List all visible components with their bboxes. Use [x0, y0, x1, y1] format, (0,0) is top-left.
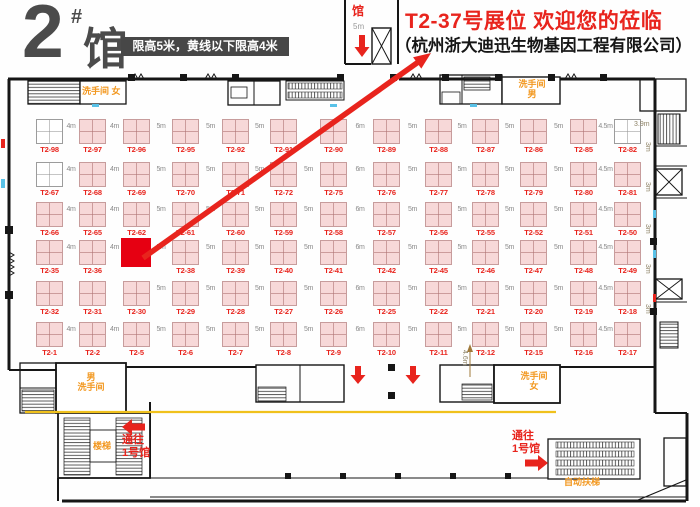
aisle-width-label: 6m — [347, 166, 373, 173]
booth-label: T2-22 — [425, 307, 452, 316]
booth-square — [320, 162, 347, 187]
booth-square — [614, 322, 641, 347]
booth: T2-66 — [36, 202, 63, 237]
aisle-width-label: 5m — [249, 166, 270, 173]
booth-label: T2-12 — [472, 348, 499, 357]
aisle-width-label: 5m — [199, 206, 222, 213]
booth: T2-41 — [320, 240, 347, 275]
booth: T2-21 — [472, 281, 499, 316]
booth: T2-50 — [614, 202, 641, 237]
aisle-width-label: 4.5m — [597, 123, 614, 130]
booth-label: T2-18 — [614, 307, 641, 316]
aisle-width-label: 5m — [249, 326, 270, 333]
aisle-width-label: 5m — [452, 166, 472, 173]
booth-square — [614, 240, 641, 265]
booth-square — [121, 238, 151, 267]
booth-label: T2-1 — [36, 348, 63, 357]
booth-square — [172, 202, 199, 227]
booth-square — [373, 240, 400, 265]
booth: T2-90 — [320, 119, 347, 154]
booth-label: T2-49 — [614, 266, 641, 275]
booth: T2-28 — [222, 281, 249, 316]
booth-square — [320, 119, 347, 144]
booth-square — [373, 162, 400, 187]
booth: T2-80 — [570, 162, 597, 197]
booth-label: T2-59 — [270, 228, 297, 237]
booth: T2-87 — [472, 119, 499, 154]
booth: T2-72 — [270, 162, 297, 197]
booth-square — [123, 119, 150, 144]
booth: T2-32 — [36, 281, 63, 316]
booth-label: T2-61 — [172, 228, 199, 237]
booth: T2-18 — [614, 281, 641, 316]
booth: T2-77 — [425, 162, 452, 197]
booth-label: T2-29 — [172, 307, 199, 316]
booth-square — [373, 281, 400, 306]
booth-label: T2-42 — [373, 266, 400, 275]
booth-square — [425, 240, 452, 265]
booth-square — [425, 322, 452, 347]
aisle-width-label: 5m — [150, 326, 172, 333]
booth-label: T2-21 — [472, 307, 499, 316]
booth-label: T2-85 — [570, 145, 597, 154]
booth-square — [425, 162, 452, 187]
booth-square — [320, 281, 347, 306]
aisle-width-label: 5m — [400, 326, 425, 333]
aisle-width-label: 4.5m — [597, 206, 614, 213]
booth-label: T2-97 — [79, 145, 106, 154]
booth-label: T2-10 — [373, 348, 400, 357]
aisle-width-label: 5m — [547, 244, 570, 251]
booth-label: T2-78 — [472, 188, 499, 197]
booth-label: T2-68 — [79, 188, 106, 197]
aisle-width-label: 5m — [297, 166, 320, 173]
booth: T2-12 — [472, 322, 499, 357]
booth-grid: T2-98T2-97T2-96T2-95T2-92T2-91T2-90T2-89… — [0, 0, 700, 507]
booth: T2-25 — [373, 281, 400, 316]
booth-square — [79, 202, 106, 227]
booth-label: T2-30 — [123, 307, 150, 316]
booth-label: T2-66 — [36, 228, 63, 237]
booth: T2-81 — [614, 162, 641, 197]
booth-label: T2-90 — [320, 145, 347, 154]
booth-label: T2-15 — [520, 348, 547, 357]
booth: T2-71 — [222, 162, 249, 197]
booth-label: T2-67 — [36, 188, 63, 197]
booth: T2-96 — [123, 119, 150, 154]
booth-label: T2-92 — [222, 145, 249, 154]
booth-square — [222, 322, 249, 347]
booth-label: T2-32 — [36, 307, 63, 316]
booth-label: T2-25 — [373, 307, 400, 316]
booth-square — [270, 119, 297, 144]
aisle-width-label: 5m — [249, 285, 270, 292]
booth-label: T2-77 — [425, 188, 452, 197]
wall-dimension-label: 3.9m — [634, 121, 650, 128]
aisle-width-label: 5m — [150, 244, 172, 251]
aisle-width-label: 4.5m — [597, 244, 614, 251]
aisle-width-label: 4m — [106, 206, 123, 213]
aisle-width-label: 5m — [452, 244, 472, 251]
aisle-width-label: 4m — [63, 326, 79, 333]
booth-label: T2-35 — [36, 266, 63, 275]
booth: T2-68 — [79, 162, 106, 197]
booth-square — [570, 119, 597, 144]
aisle-width-label: 4.5m — [597, 326, 614, 333]
aisle-width-label: 6m — [347, 285, 373, 292]
booth: T2-65 — [79, 202, 106, 237]
booth-square — [320, 240, 347, 265]
aisle-width-label: 5m — [452, 123, 472, 130]
booth-square — [520, 240, 547, 265]
booth-square — [614, 281, 641, 306]
aisle-width-label: 5m — [400, 123, 425, 130]
booth-square — [472, 322, 499, 347]
booth-label: T2-27 — [270, 307, 297, 316]
booth-square — [425, 202, 452, 227]
aisle-width-label: 5m — [150, 123, 172, 130]
booth-label: T2-72 — [270, 188, 297, 197]
booth: T2-88 — [425, 119, 452, 154]
booth-square — [472, 240, 499, 265]
aisle-width-label: 5m — [499, 206, 520, 213]
booth-label: T2-41 — [320, 266, 347, 275]
aisle-width-label: 5m — [547, 206, 570, 213]
aisle-width-label: 5m — [150, 206, 172, 213]
booth-square — [222, 202, 249, 227]
booth: T2-2 — [79, 322, 106, 357]
booth-square — [570, 281, 597, 306]
booth-label: T2-2 — [79, 348, 106, 357]
booth: T2-26 — [320, 281, 347, 316]
booth-label: T2-38 — [172, 266, 199, 275]
booth-square — [570, 322, 597, 347]
booth-square — [270, 162, 297, 187]
booth-square — [172, 240, 199, 265]
booth-label: T2-20 — [520, 307, 547, 316]
booth-square — [320, 322, 347, 347]
booth-label: T2-98 — [36, 145, 63, 154]
booth-label: T2-17 — [614, 348, 641, 357]
booth-label: T2-91 — [270, 145, 297, 154]
aisle-width-label: 5m — [249, 206, 270, 213]
booth: T2-11 — [425, 322, 452, 357]
aisle-width-label: 5m — [150, 166, 172, 173]
booth-square — [79, 240, 106, 265]
booth: T2-78 — [472, 162, 499, 197]
booth-label: T2-40 — [270, 266, 297, 275]
booth-label: T2-39 — [222, 266, 249, 275]
booth: T2-47 — [520, 240, 547, 275]
wall-dimension-label: 3m — [644, 304, 651, 314]
booth-square — [570, 202, 597, 227]
aisle-width-label: 5m — [452, 206, 472, 213]
booth-square — [320, 202, 347, 227]
aisle-width-label: 5m — [297, 285, 320, 292]
booth-square — [172, 119, 199, 144]
booth-square — [123, 202, 150, 227]
aisle-width-label: 4m — [63, 206, 79, 213]
booth: T2-7 — [222, 322, 249, 357]
aisle-width-label: 5m — [199, 244, 222, 251]
booth: T2-31 — [79, 281, 106, 316]
booth: T2-22 — [425, 281, 452, 316]
booth-square — [425, 281, 452, 306]
aisle-width-label: 4m — [106, 326, 123, 333]
aisle-width-label: 5m — [547, 166, 570, 173]
aisle-width-label: 4m — [106, 244, 123, 251]
aisle-width-label: 4m — [106, 166, 123, 173]
aisle-width-label: 5m — [297, 206, 320, 213]
booth: T2-97 — [79, 119, 106, 154]
booth-square — [520, 119, 547, 144]
booth-square — [123, 322, 150, 347]
booth-label: T2-26 — [320, 307, 347, 316]
aisle-width-label: 5m — [452, 326, 472, 333]
booth-square — [222, 162, 249, 187]
booth: T2-56 — [425, 202, 452, 237]
booth: T2-6 — [172, 322, 199, 357]
booth-label: T2-50 — [614, 228, 641, 237]
booth-label: T2-87 — [472, 145, 499, 154]
booth: T2-58 — [320, 202, 347, 237]
aisle-width-label: 5m — [249, 244, 270, 251]
booth-label: T2-79 — [520, 188, 547, 197]
booth-label: T2-96 — [123, 145, 150, 154]
booth-square — [472, 119, 499, 144]
booth-square — [123, 162, 150, 187]
booth: T2-48 — [570, 240, 597, 275]
booth-label: T2-86 — [520, 145, 547, 154]
booth: T2-9 — [320, 322, 347, 357]
booth-label: T2-88 — [425, 145, 452, 154]
booth-square — [472, 162, 499, 187]
booth-label: T2-8 — [270, 348, 297, 357]
booth-label: T2-16 — [570, 348, 597, 357]
booth-square — [614, 202, 641, 227]
booth-square — [123, 281, 150, 306]
booth-square — [570, 240, 597, 265]
booth-square — [520, 281, 547, 306]
aisle-width-label: 4m — [63, 123, 79, 130]
aisle-width-label: 6m — [347, 244, 373, 251]
booth: T2-76 — [373, 162, 400, 197]
booth-square — [222, 281, 249, 306]
booth: T2-10 — [373, 322, 400, 357]
booth: T2-39 — [222, 240, 249, 275]
booth-label: T2-48 — [570, 266, 597, 275]
booth: T2-30 — [123, 281, 150, 316]
booth-square — [570, 162, 597, 187]
booth: T2-67 — [36, 162, 63, 197]
aisle-width-label: 5m — [499, 123, 520, 130]
booth-label: T2-55 — [472, 228, 499, 237]
booth-label: T2-28 — [222, 307, 249, 316]
aisle-width-label: 5m — [499, 326, 520, 333]
aisle-width-label: 6m — [347, 123, 373, 130]
booth-square — [36, 281, 63, 306]
floorplan-image: T2-98T2-97T2-96T2-95T2-92T2-91T2-90T2-89… — [0, 0, 700, 507]
booth-label: T2-89 — [373, 145, 400, 154]
booth: T2-49 — [614, 240, 641, 275]
aisle-width-label: 5m — [400, 206, 425, 213]
booth: T2-85 — [570, 119, 597, 154]
booth-square — [472, 202, 499, 227]
booth: T2-52 — [520, 202, 547, 237]
booth-label: T2-81 — [614, 188, 641, 197]
booth: T2-1 — [36, 322, 63, 357]
booth-square — [79, 322, 106, 347]
booth-square — [270, 240, 297, 265]
aisle-width-label: 5m — [400, 166, 425, 173]
booth-label: T2-7 — [222, 348, 249, 357]
booth-square — [36, 119, 63, 144]
booth-label: T2-58 — [320, 228, 347, 237]
aisle-width-label: 5m — [547, 326, 570, 333]
booth: T2-70 — [172, 162, 199, 197]
booth-square — [520, 322, 547, 347]
aisle-width-label: 4m — [63, 244, 79, 251]
booth: T2-40 — [270, 240, 297, 275]
booth-square — [36, 240, 63, 265]
booth-square — [172, 322, 199, 347]
booth-label: T2-71 — [222, 188, 249, 197]
aisle-width-label: 5m — [150, 285, 172, 292]
wall-dimension-label: 3m — [644, 224, 651, 234]
booth-square — [270, 281, 297, 306]
booth-label: T2-47 — [520, 266, 547, 275]
booth-label: T2-62 — [123, 228, 150, 237]
aisle-width-label: 5m — [499, 285, 520, 292]
booth-label: T2-51 — [570, 228, 597, 237]
booth-label: T2-19 — [570, 307, 597, 316]
booth-square — [36, 322, 63, 347]
aisle-width-label: 4m — [63, 166, 79, 173]
booth: T2-86 — [520, 119, 547, 154]
booth: T2-38 — [172, 240, 199, 275]
booth-label: T2-31 — [79, 307, 106, 316]
booth-label: T2-75 — [320, 188, 347, 197]
booth: T2-91 — [270, 119, 297, 154]
booth: T2-16 — [570, 322, 597, 357]
booth: T2-89 — [373, 119, 400, 154]
booth: T2-75 — [320, 162, 347, 197]
aisle-width-label: 5m — [199, 123, 222, 130]
booth-square — [222, 119, 249, 144]
booth-square — [472, 281, 499, 306]
aisle-width-label: 4.5m — [597, 166, 614, 173]
booth: T2-79 — [520, 162, 547, 197]
booth: T2-92 — [222, 119, 249, 154]
booth: T2-61 — [172, 202, 199, 237]
booth: T2-55 — [472, 202, 499, 237]
booth-label: T2-60 — [222, 228, 249, 237]
booth-label: T2-95 — [172, 145, 199, 154]
booth-label: T2-11 — [425, 348, 452, 357]
booth: T2-8 — [270, 322, 297, 357]
booth-square — [36, 162, 63, 187]
wall-dimension-label: 3m — [644, 142, 651, 152]
booth-square — [79, 162, 106, 187]
booth-square — [79, 119, 106, 144]
aisle-width-label: 5m — [297, 244, 320, 251]
aisle-width-label: 5m — [547, 285, 570, 292]
booth: T2-45 — [425, 240, 452, 275]
aisle-width-label: 5m — [452, 285, 472, 292]
booth-square — [520, 202, 547, 227]
booth-label: T2-65 — [79, 228, 106, 237]
booth-label: T2-6 — [172, 348, 199, 357]
booth-square — [373, 119, 400, 144]
aisle-width-label: 6m — [347, 326, 373, 333]
aisle-width-label: 5m — [547, 123, 570, 130]
booth: T2-51 — [570, 202, 597, 237]
booth: T2-35 — [36, 240, 63, 275]
booth-square — [614, 162, 641, 187]
booth: T2-29 — [172, 281, 199, 316]
booth: T2-36 — [79, 240, 106, 275]
aisle-width-label: 5m — [249, 123, 270, 130]
booth-label: T2-82 — [614, 145, 641, 154]
booth: T2-15 — [520, 322, 547, 357]
booth-square — [79, 281, 106, 306]
booth-square — [222, 240, 249, 265]
booth: T2-20 — [520, 281, 547, 316]
highlighted-booth — [123, 240, 150, 268]
booth: T2-69 — [123, 162, 150, 197]
booth-label: T2-46 — [472, 266, 499, 275]
booth-label: T2-69 — [123, 188, 150, 197]
booth: T2-98 — [36, 119, 63, 154]
booth-square — [36, 202, 63, 227]
aisle-width-label: 6m — [347, 206, 373, 213]
aisle-width-label: 5m — [199, 285, 222, 292]
booth-label: T2-76 — [373, 188, 400, 197]
aisle-width-label: 5m — [499, 166, 520, 173]
aisle-width-label: 4m — [106, 123, 123, 130]
aisle-width-label: 5m — [297, 326, 320, 333]
wall-dimension-label: 3m — [644, 264, 651, 274]
booth-square — [172, 281, 199, 306]
aisle-width-label: 5m — [400, 244, 425, 251]
booth: T2-60 — [222, 202, 249, 237]
booth: T2-62 — [123, 202, 150, 237]
booth-square — [373, 202, 400, 227]
booth-square — [425, 119, 452, 144]
booth: T2-57 — [373, 202, 400, 237]
booth-label: T2-80 — [570, 188, 597, 197]
booth-square — [270, 202, 297, 227]
booth: T2-42 — [373, 240, 400, 275]
booth-square — [270, 322, 297, 347]
aisle-width-label: 5m — [400, 285, 425, 292]
booth-label: T2-52 — [520, 228, 547, 237]
booth: T2-17 — [614, 322, 641, 357]
booth: T2-5 — [123, 322, 150, 357]
booth-label: T2-9 — [320, 348, 347, 357]
booth: T2-95 — [172, 119, 199, 154]
booth-square — [373, 322, 400, 347]
booth-label: T2-5 — [123, 348, 150, 357]
booth: T2-19 — [570, 281, 597, 316]
aisle-width-label: 4.5m — [597, 285, 614, 292]
booth-label: T2-56 — [425, 228, 452, 237]
aisle-width-label: 5m — [499, 244, 520, 251]
booth-label: T2-57 — [373, 228, 400, 237]
booth-square — [172, 162, 199, 187]
booth-label: T2-45 — [425, 266, 452, 275]
booth: T2-59 — [270, 202, 297, 237]
